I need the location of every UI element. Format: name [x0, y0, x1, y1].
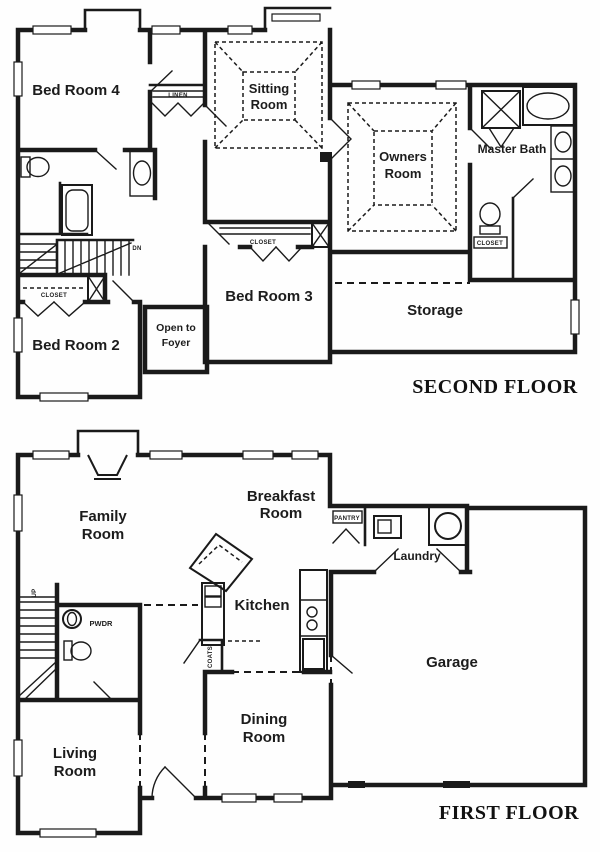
- second-floor-stairs: [18, 240, 133, 275]
- label-storage: Storage: [407, 302, 463, 319]
- label-bed-room-3: Bed Room 3: [225, 288, 313, 305]
- label-stairs-down: DN: [132, 246, 141, 252]
- label-dining-room-2: Room: [243, 729, 286, 746]
- label-family-room-2: Room: [82, 526, 125, 543]
- label-breakfast-room-1: Breakfast: [247, 488, 315, 505]
- label-bed-room-2: Bed Room 2: [32, 337, 120, 354]
- first-floor-stairs: [18, 597, 57, 700]
- first-floor-plan: Family Room Breakfast Room Kitchen Laund…: [14, 431, 585, 837]
- label-sitting-room-1: Sitting: [249, 81, 289, 96]
- toilet-icon: [21, 157, 30, 177]
- label-master-bath: Master Bath: [478, 142, 547, 156]
- label-garage: Garage: [426, 654, 478, 671]
- label-bed-room-4: Bed Room 4: [32, 82, 120, 99]
- garage-door-jamb: [348, 781, 365, 788]
- powder-room-fixtures: [63, 610, 91, 660]
- fireplace-icon: [88, 455, 127, 479]
- label-closet-bed2: CLOSET: [41, 293, 67, 299]
- label-closet-bed3: CLOSET: [250, 240, 276, 246]
- label-laundry: Laundry: [393, 549, 441, 563]
- front-door: [152, 767, 196, 798]
- label-closet-master: CLOSET: [477, 241, 503, 247]
- label-sitting-room-2: Room: [251, 97, 288, 112]
- label-owners-room-2: Room: [385, 166, 422, 181]
- label-powder-room: PWDR: [90, 619, 113, 628]
- cooktop-icon: [307, 607, 317, 617]
- first-floor-title: FIRST FLOOR: [439, 802, 579, 824]
- label-living-room-2: Room: [54, 763, 97, 780]
- label-coats-closet: COATS: [208, 646, 214, 668]
- label-stairs-up: UP: [32, 589, 38, 598]
- label-dining-room-1: Dining: [241, 711, 288, 728]
- label-pantry: PANTRY: [334, 516, 360, 522]
- kitchen-counter-run: [300, 570, 327, 672]
- toilet-icon: [480, 203, 500, 225]
- label-breakfast-room-2: Room: [260, 505, 303, 522]
- second-floor-closets: [23, 91, 329, 302]
- pantry-bifold-door: [333, 529, 359, 543]
- first-floor-doors: [94, 529, 461, 798]
- hall-bath-fixtures: [21, 151, 155, 235]
- floorplan-document: Bed Room 4 Sitting Room Owners Room Mast…: [0, 0, 600, 852]
- refrigerator-icon: [303, 639, 324, 669]
- label-linen-closet: LINEN: [168, 93, 188, 99]
- floorplan-drawing: Bed Room 4 Sitting Room Owners Room Mast…: [0, 0, 600, 852]
- label-living-room-1: Living: [53, 745, 97, 762]
- label-owners-room-1: Owners: [379, 149, 427, 164]
- garage-door-jamb: [443, 781, 470, 788]
- master-bath-fixtures: [474, 87, 575, 248]
- label-kitchen: Kitchen: [234, 597, 289, 614]
- kitchen-sink-icon: [205, 586, 221, 596]
- label-open-to-foyer-1: Open to: [156, 322, 196, 334]
- second-floor-title: SECOND FLOOR: [412, 376, 578, 398]
- second-floor-plan: Bed Room 4 Sitting Room Owners Room Mast…: [14, 8, 579, 401]
- label-open-to-foyer-2: Foyer: [162, 337, 191, 349]
- label-family-room-1: Family: [79, 508, 127, 525]
- laundry-fixtures: [333, 506, 467, 545]
